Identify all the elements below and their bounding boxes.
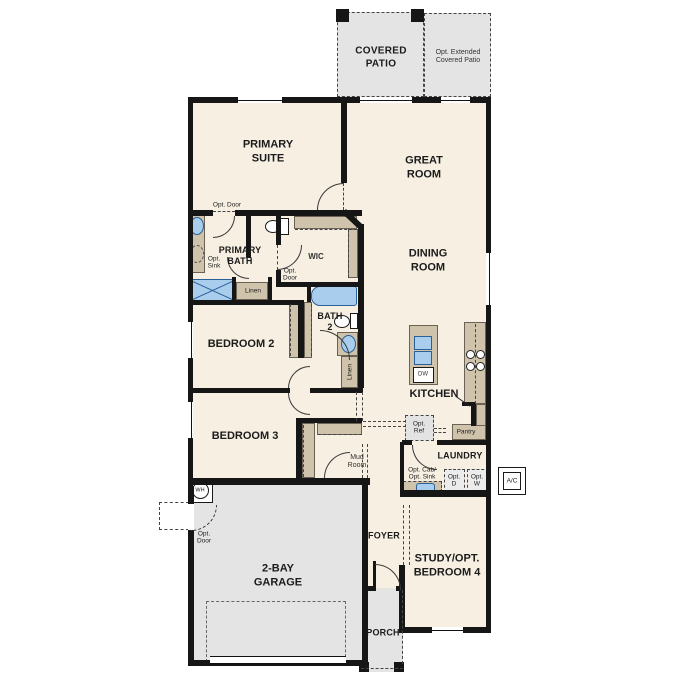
opt-wall-dash — [403, 505, 404, 565]
label-opt-door-wic: Opt. Door — [283, 268, 297, 283]
opening-dash — [434, 428, 446, 429]
wall — [400, 442, 404, 495]
label-opt-sink: Opt. Sink — [208, 256, 221, 271]
label-porch: PORCH — [366, 627, 400, 638]
label-linen-bath2: Linen — [346, 364, 353, 380]
label-pantry: Pantry — [457, 428, 476, 435]
label-wic: WIC — [308, 252, 324, 262]
sliding-door — [441, 97, 470, 103]
wall — [188, 388, 290, 393]
wall — [298, 302, 304, 358]
toilet-tank-bath2 — [350, 313, 358, 329]
toilet-tank-primary — [280, 218, 289, 235]
label-garage: 2-BAY GARAGE — [254, 562, 302, 590]
label-dining-room: DINING ROOM — [409, 247, 448, 275]
opening-dash — [362, 392, 363, 421]
label-great-room: GREAT ROOM — [405, 154, 443, 182]
wall — [358, 224, 364, 388]
wall — [307, 286, 311, 302]
label-covered-patio: COVERED PATIO — [355, 46, 407, 71]
label-bedroom2: BEDROOM 2 — [208, 338, 275, 352]
range-burner — [466, 362, 475, 371]
floor-plan: COVERED PATIO Opt. Extended Covered Pati… — [0, 0, 687, 687]
closet-door-dash — [290, 304, 291, 356]
range-burner — [466, 350, 475, 359]
label-laundry: LAUNDRY — [437, 450, 482, 461]
wall — [471, 402, 476, 426]
wic-shelf-right — [348, 229, 358, 278]
wall — [276, 213, 281, 245]
wall — [188, 300, 304, 305]
shelf-dash — [348, 229, 349, 278]
range-burner — [476, 350, 485, 359]
bathtub — [311, 286, 357, 306]
porch-edge-dash — [361, 668, 403, 669]
wall — [276, 282, 362, 287]
label-mud-room: Mud Room — [348, 454, 367, 470]
wall — [437, 440, 491, 445]
patio-post — [411, 9, 424, 22]
opening-dash — [363, 426, 406, 427]
label-kitchen: KITCHEN — [410, 388, 459, 402]
garage-door — [210, 656, 346, 664]
opt-wall-dash — [409, 505, 410, 565]
label-opt-washer: Opt. W — [471, 474, 483, 489]
label-bedroom3: BEDROOM 3 — [212, 430, 279, 444]
wall — [188, 478, 370, 485]
pantry-shelf — [476, 404, 486, 426]
range-burner — [476, 362, 485, 371]
label-opt-ref: Opt. Ref — [413, 421, 425, 436]
porch-post — [359, 662, 369, 672]
label-primary-bath: PRIMARY BATH — [219, 245, 262, 268]
closet-door-dash — [311, 304, 312, 356]
island-sink-basin — [414, 351, 432, 365]
window — [486, 253, 491, 305]
closet-door-dash — [303, 425, 304, 477]
garage-parking-outline — [206, 601, 346, 662]
door-panel-dashed — [343, 183, 344, 210]
door-panel-dashed — [213, 211, 235, 212]
counter-centerline-dash — [475, 324, 476, 404]
label-opt-door-garage: Opt. Door — [197, 531, 211, 546]
wall — [341, 97, 347, 183]
bench-front-dash — [318, 434, 362, 435]
opening-dash — [363, 421, 406, 422]
wall — [486, 97, 491, 633]
label-dishwasher: DW — [418, 371, 428, 379]
label-study: STUDY/OPT. BEDROOM 4 — [414, 552, 481, 580]
label-foyer: FOYER — [368, 530, 400, 541]
opening-dash — [434, 432, 446, 433]
shower — [190, 279, 236, 302]
wall — [296, 418, 302, 478]
label-opt-cab-sink: Opt. Cab/ Opt. Sink — [408, 467, 436, 482]
wall — [188, 210, 213, 216]
label-primary-suite: PRIMARY SUITE — [243, 138, 293, 166]
window — [188, 322, 193, 358]
porch-edge-dash — [402, 590, 403, 664]
wall — [400, 490, 491, 497]
window — [188, 402, 193, 438]
window — [432, 627, 463, 633]
island-sink-basin — [414, 336, 432, 350]
wall — [296, 418, 362, 423]
label-water-heater: WH — [195, 488, 204, 495]
label-opt-dryer: Opt. D — [448, 474, 460, 489]
opening-dash — [367, 444, 368, 478]
label-ac: A/C — [507, 477, 518, 484]
sliding-door — [360, 97, 412, 103]
opt-door-exterior-outline — [159, 502, 189, 530]
window — [238, 97, 282, 103]
label-linen-primary: Linen — [245, 287, 261, 294]
label-ext-patio: Opt. Extended Covered Patio — [436, 49, 481, 65]
opening-dash — [356, 392, 357, 421]
patio-post — [336, 9, 349, 22]
door-panel-dashed — [277, 245, 278, 270]
label-bath2: BATH 2 — [317, 311, 342, 334]
label-opt-door-primary: Opt. Door — [213, 201, 241, 208]
